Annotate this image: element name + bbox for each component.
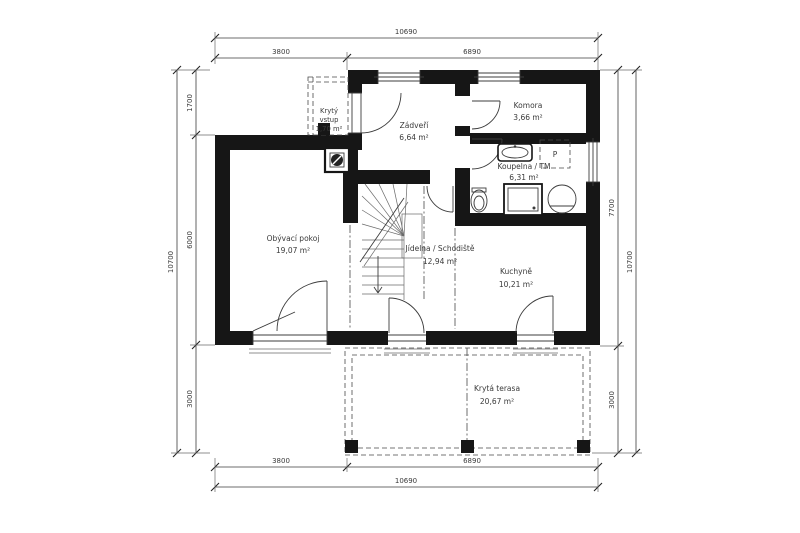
dim-top-total: 10690 xyxy=(395,28,417,36)
hall-door xyxy=(427,186,453,212)
wall-entry-up xyxy=(348,70,362,93)
dining-terrace-door xyxy=(384,298,430,353)
dimension-left: 10700 1700 6000 3000 xyxy=(167,66,215,457)
dim-right-seg-1: 3000 xyxy=(608,391,616,409)
chimney xyxy=(325,148,349,172)
stair-direction-arrow xyxy=(374,256,382,293)
dim-left-seg-1: 6000 xyxy=(186,231,194,249)
wall-living-left xyxy=(215,135,230,345)
staircase xyxy=(360,184,422,300)
kitchen-terrace-door xyxy=(513,296,558,353)
room-label-kuchyne: Kuchyně xyxy=(500,267,532,276)
room-label-kryty-vstup-2: vstup xyxy=(320,116,339,124)
terrace-column-left xyxy=(345,440,358,453)
room-area-zadveri: 6,64 m² xyxy=(399,133,428,142)
room-label-terasa: Krytá terasa xyxy=(474,384,520,393)
wall-hall-vert-b xyxy=(455,126,470,136)
wall-hall-vert-a xyxy=(455,84,470,96)
terrace-column-middle xyxy=(461,440,474,453)
wall-bottom-d xyxy=(554,331,600,345)
toilet xyxy=(471,188,487,212)
wall-top-b xyxy=(420,70,478,84)
dim-right-total: 10700 xyxy=(626,251,634,273)
room-area-kryty-vstup: 1,70 m² xyxy=(316,125,343,133)
entrance-door xyxy=(348,93,401,133)
window-top-komora xyxy=(474,70,524,84)
room-label-obyvaci: Obývací pokoj xyxy=(267,234,320,243)
wall-zadveri-bottom xyxy=(352,170,430,184)
dim-top-left: 3800 xyxy=(272,48,290,56)
floor-plan-drawing: P Krytý vstup 1,70 m² Zádveří 6,64 m² xyxy=(0,0,800,533)
window-top-zadveri xyxy=(374,70,424,84)
dim-top-right: 6890 xyxy=(463,48,481,56)
water-heater xyxy=(548,185,576,213)
room-label-komora: Komora xyxy=(514,101,543,110)
dim-left-seg-0: 1700 xyxy=(186,94,194,112)
shower xyxy=(504,184,542,215)
living-french-door xyxy=(249,281,331,353)
room-label-kryty-vstup-1: Krytý xyxy=(320,107,338,115)
terrace-column-right xyxy=(577,440,590,453)
room-label-koupelna: Koupelna / TM xyxy=(497,162,550,171)
dim-bottom-right: 6890 xyxy=(463,457,481,465)
dim-left-total: 10700 xyxy=(167,251,175,273)
terrace-outline-inner xyxy=(352,355,583,448)
wall-right-lower xyxy=(586,182,600,345)
dimension-bottom: 3800 6890 10690 xyxy=(211,457,602,492)
komora-door xyxy=(472,101,500,129)
room-area-obyvaci: 19,07 m² xyxy=(276,246,310,255)
room-area-kuchyne: 10,21 m² xyxy=(499,280,533,289)
window-bathroom xyxy=(586,138,600,186)
washing-machine-label: P xyxy=(553,150,558,159)
wall-bottom-c xyxy=(426,331,517,345)
dim-right-seg-0: 7700 xyxy=(608,199,616,217)
dim-bottom-total: 10690 xyxy=(395,477,417,485)
floor-plan-canvas: P Krytý vstup 1,70 m² Zádveří 6,64 m² xyxy=(0,0,800,533)
wall-komora-bath xyxy=(470,133,586,144)
dim-left-seg-2: 3000 xyxy=(186,390,194,408)
washbasin xyxy=(498,144,532,161)
wall-bottom-b xyxy=(327,331,388,345)
terrace xyxy=(345,348,590,455)
dimension-top: 10690 3800 6890 xyxy=(211,28,602,70)
wall-bottom-a xyxy=(215,331,253,345)
dim-bottom-left: 3800 xyxy=(272,457,290,465)
room-area-komora: 3,66 m² xyxy=(513,113,542,122)
wall-right-upper xyxy=(586,70,600,142)
room-area-jidelna: 12,94 m² xyxy=(423,257,457,266)
room-label-jidelna: Jídelna / Schodiště xyxy=(405,244,475,253)
room-label-zadveri: Zádveří xyxy=(400,121,430,130)
terrace-outline-outer xyxy=(345,348,590,455)
room-area-terasa: 20,67 m² xyxy=(480,397,514,406)
room-area-koupelna: 6,31 m² xyxy=(509,173,538,182)
